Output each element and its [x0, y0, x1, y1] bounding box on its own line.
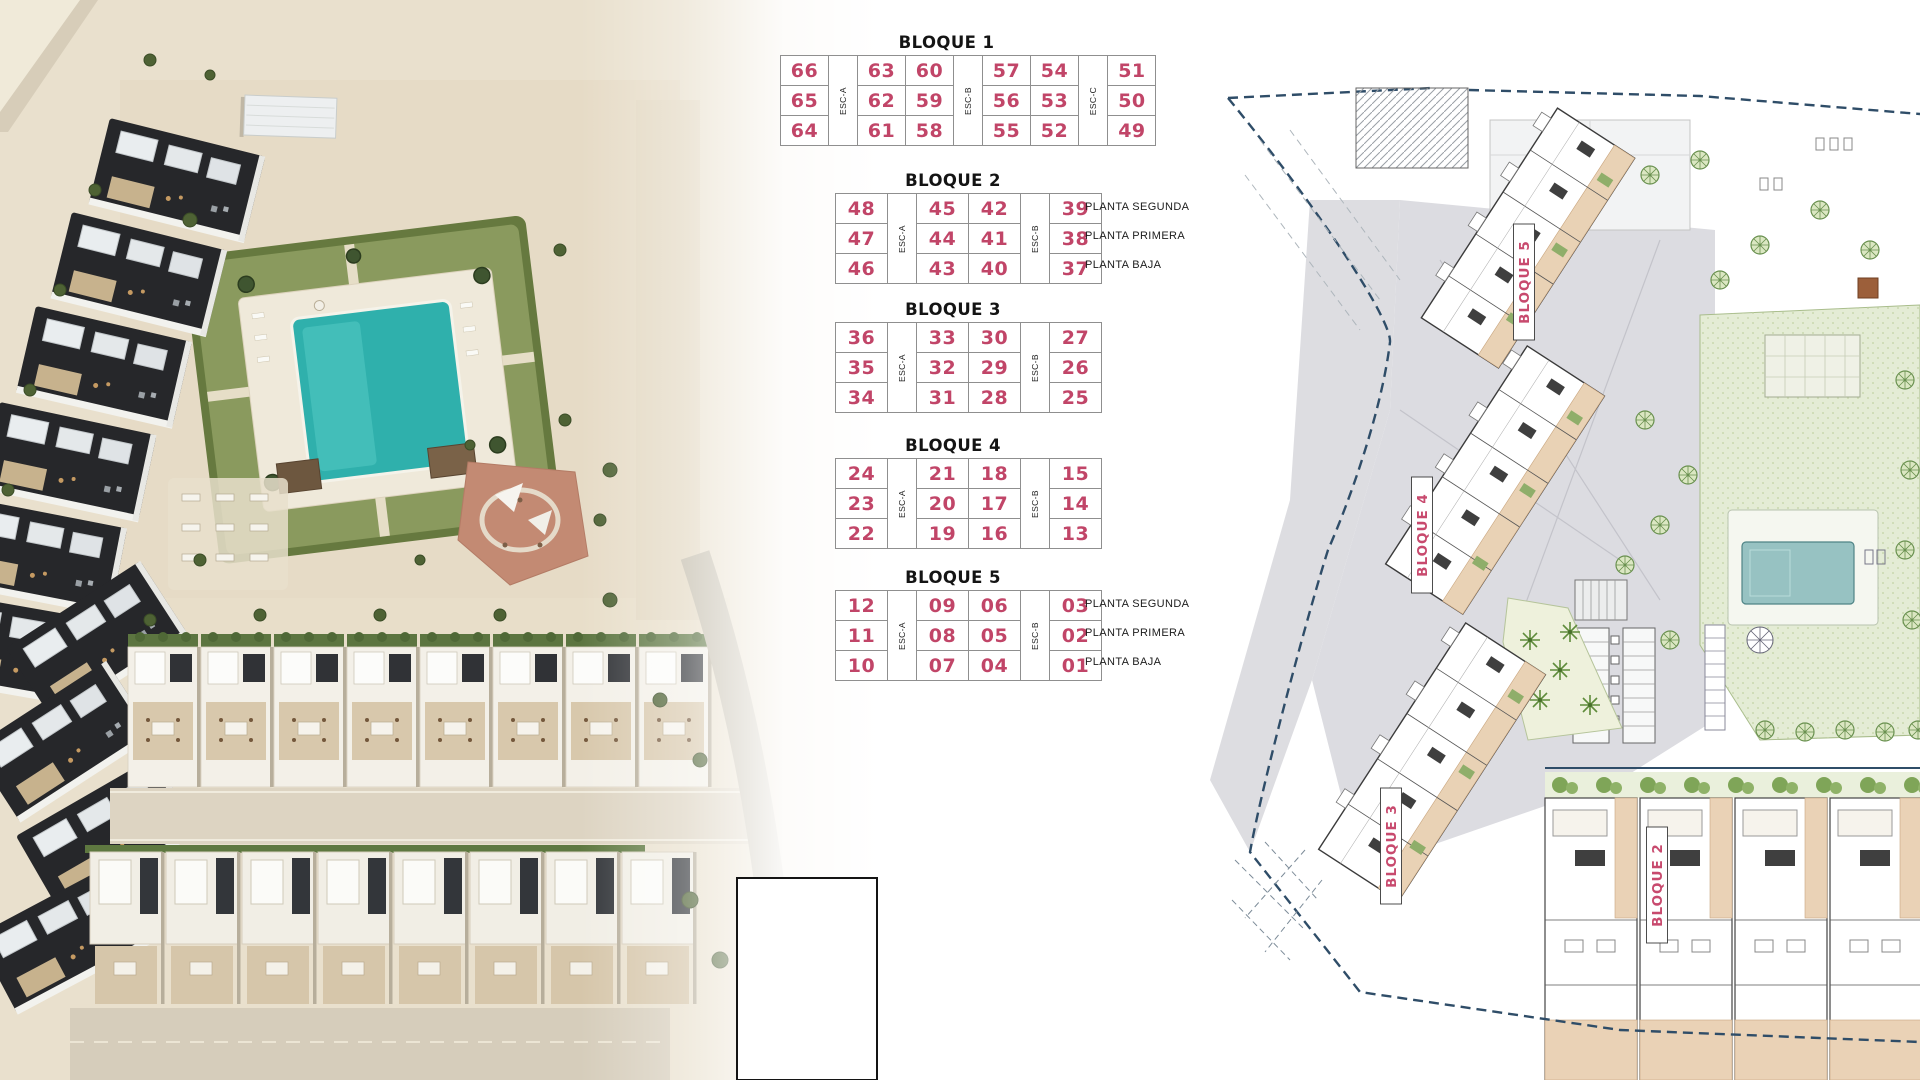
bloque-title: BLOQUE 1 [780, 33, 1113, 55]
unit-cell[interactable]: 19 [916, 519, 968, 549]
unit-cell[interactable]: 10 [836, 651, 888, 681]
unit-cell[interactable]: 32 [916, 353, 968, 383]
unit-cell[interactable]: 57 [982, 56, 1030, 86]
unit-cell[interactable]: 40 [968, 254, 1020, 284]
plan-tree [1661, 631, 1679, 649]
unit-cell[interactable]: 63 [857, 56, 905, 86]
plan-garden [1700, 305, 1920, 740]
site-plan: BLOQUE 5 BLOQUE 4 BLOQUE 3 BLOQUE 2 [1060, 80, 1920, 1080]
unit-cell[interactable]: 09 [916, 591, 968, 621]
unit-cell[interactable]: 31 [916, 383, 968, 413]
unit-cell[interactable]: 65 [781, 86, 829, 116]
esc-cell: ESC-B [953, 56, 982, 146]
unit-cell[interactable]: 47 [836, 224, 888, 254]
esc-cell: ESC-B [1020, 323, 1049, 413]
unit-cell[interactable]: 08 [916, 621, 968, 651]
esc-label: ESC-A [897, 490, 907, 518]
unit-cell[interactable]: 48 [836, 194, 888, 224]
esc-cell: ESC-B [1020, 591, 1049, 681]
unit-cell[interactable]: 12 [836, 591, 888, 621]
unit-cell[interactable]: 44 [916, 224, 968, 254]
bloque-2-unit [1830, 798, 1920, 1080]
esc-cell: ESC-A [888, 591, 917, 681]
unit-cell[interactable]: 20 [916, 489, 968, 519]
plan-tree [1896, 371, 1914, 389]
unit-cell[interactable]: 59 [905, 86, 953, 116]
esc-label: ESC-A [897, 354, 907, 382]
esc-label: ESC-B [963, 87, 973, 115]
unit-cell[interactable]: 30 [968, 323, 1020, 353]
plan-tree [1679, 466, 1697, 484]
esc-label: ESC-B [1030, 225, 1040, 253]
unit-cell[interactable]: 05 [968, 621, 1020, 651]
garden-stairs [1705, 625, 1725, 730]
unit-cell[interactable]: 56 [982, 86, 1030, 116]
unit-cell[interactable]: 60 [905, 56, 953, 86]
esc-cell: ESC-B [1020, 459, 1049, 549]
terrace-furniture [1760, 138, 1852, 190]
svg-text:BLOQUE 3: BLOQUE 3 [1384, 804, 1400, 888]
plan-tree [1616, 556, 1634, 574]
block-label-bloque-4: BLOQUE 4 [1412, 477, 1433, 593]
unit-cell[interactable]: 11 [836, 621, 888, 651]
plan-tree [1861, 241, 1879, 259]
unit-cell[interactable]: 41 [968, 224, 1020, 254]
unit-cell[interactable]: 64 [781, 116, 829, 146]
unit-cell[interactable]: 17 [968, 489, 1020, 519]
unit-cell[interactable]: 34 [836, 383, 888, 413]
ramp-hatched [1356, 88, 1468, 168]
esc-label: ESC-A [838, 87, 848, 115]
svg-text:BLOQUE 2: BLOQUE 2 [1650, 843, 1666, 927]
unit-cell[interactable]: 55 [982, 116, 1030, 146]
plan-tree [1796, 723, 1814, 741]
page: BLOQUE 166ESC-A6360ESC-B5754ESC-C5165625… [0, 0, 1920, 1080]
bloque-title: BLOQUE 3 [835, 300, 1071, 322]
unit-cell[interactable]: 43 [916, 254, 968, 284]
unit-cell[interactable]: 06 [968, 591, 1020, 621]
svg-text:BLOQUE 5: BLOQUE 5 [1517, 240, 1533, 324]
plan-pool [1742, 542, 1854, 604]
esc-label: ESC-A [897, 225, 907, 253]
esc-cell: ESC-A [888, 194, 917, 284]
unit-cell[interactable]: 07 [916, 651, 968, 681]
esc-label: ESC-B [1030, 622, 1040, 650]
bloque-title: BLOQUE 5 [835, 568, 1071, 590]
block-label-bloque-3: BLOQUE 3 [1381, 788, 1402, 904]
unit-cell[interactable]: 28 [968, 383, 1020, 413]
unit-cell[interactable]: 36 [836, 323, 888, 353]
esc-cell: ESC-B [1020, 194, 1049, 284]
unit-cell[interactable]: 35 [836, 353, 888, 383]
unit-cell[interactable]: 42 [968, 194, 1020, 224]
plan-tree [1641, 166, 1659, 184]
block-label-bloque-2: BLOQUE 2 [1647, 827, 1668, 943]
plan-tree [1876, 723, 1894, 741]
unit-cell[interactable]: 24 [836, 459, 888, 489]
plan-tree [1751, 236, 1769, 254]
unit-cell[interactable]: 21 [916, 459, 968, 489]
bloque-title: BLOQUE 2 [835, 171, 1071, 193]
unit-cell[interactable]: 45 [916, 194, 968, 224]
bloque-2-unit [1545, 798, 1637, 1080]
esc-cell: ESC-A [888, 323, 917, 413]
plan-tree [1836, 721, 1854, 739]
bloque-2-hedge [1552, 777, 1920, 794]
unit-cell[interactable]: 29 [968, 353, 1020, 383]
plan-tree [1711, 271, 1729, 289]
equipment-hut [1858, 278, 1878, 298]
unit-cell[interactable]: 58 [905, 116, 953, 146]
unit-cell[interactable]: 62 [857, 86, 905, 116]
construction-hatch-bottom [1232, 842, 1322, 960]
esc-cell: ESC-A [888, 459, 917, 549]
unit-cell[interactable]: 16 [968, 519, 1020, 549]
plan-tree [1903, 611, 1920, 629]
legend-box [736, 877, 878, 1080]
unit-cell[interactable]: 46 [836, 254, 888, 284]
block-label-bloque-5: BLOQUE 5 [1514, 224, 1535, 340]
unit-cell[interactable]: 22 [836, 519, 888, 549]
plan-tree [1901, 461, 1919, 479]
building-bloque-2-row [1545, 768, 1920, 1080]
esc-label: ESC-A [897, 622, 907, 650]
unit-cell[interactable]: 23 [836, 489, 888, 519]
unit-cell[interactable]: 33 [916, 323, 968, 353]
unit-cell[interactable]: 66 [781, 56, 829, 86]
esc-label: ESC-B [1030, 354, 1040, 382]
esc-label: ESC-B [1030, 490, 1040, 518]
bloque-title: BLOQUE 4 [835, 436, 1071, 458]
unit-cell[interactable]: 04 [968, 651, 1020, 681]
plan-tree [1756, 721, 1774, 739]
plan-tree [1896, 541, 1914, 559]
bloque-2-units [1545, 798, 1920, 1080]
plan-tree [1811, 201, 1829, 219]
svg-text:BLOQUE 4: BLOQUE 4 [1415, 493, 1431, 577]
esc-cell: ESC-A [829, 56, 858, 146]
garden-pergola [1765, 335, 1860, 397]
unit-cell[interactable]: 18 [968, 459, 1020, 489]
unit-cell[interactable]: 61 [857, 116, 905, 146]
plan-tree [1636, 411, 1654, 429]
plan-tree [1691, 151, 1709, 169]
plan-tree [1651, 516, 1669, 534]
